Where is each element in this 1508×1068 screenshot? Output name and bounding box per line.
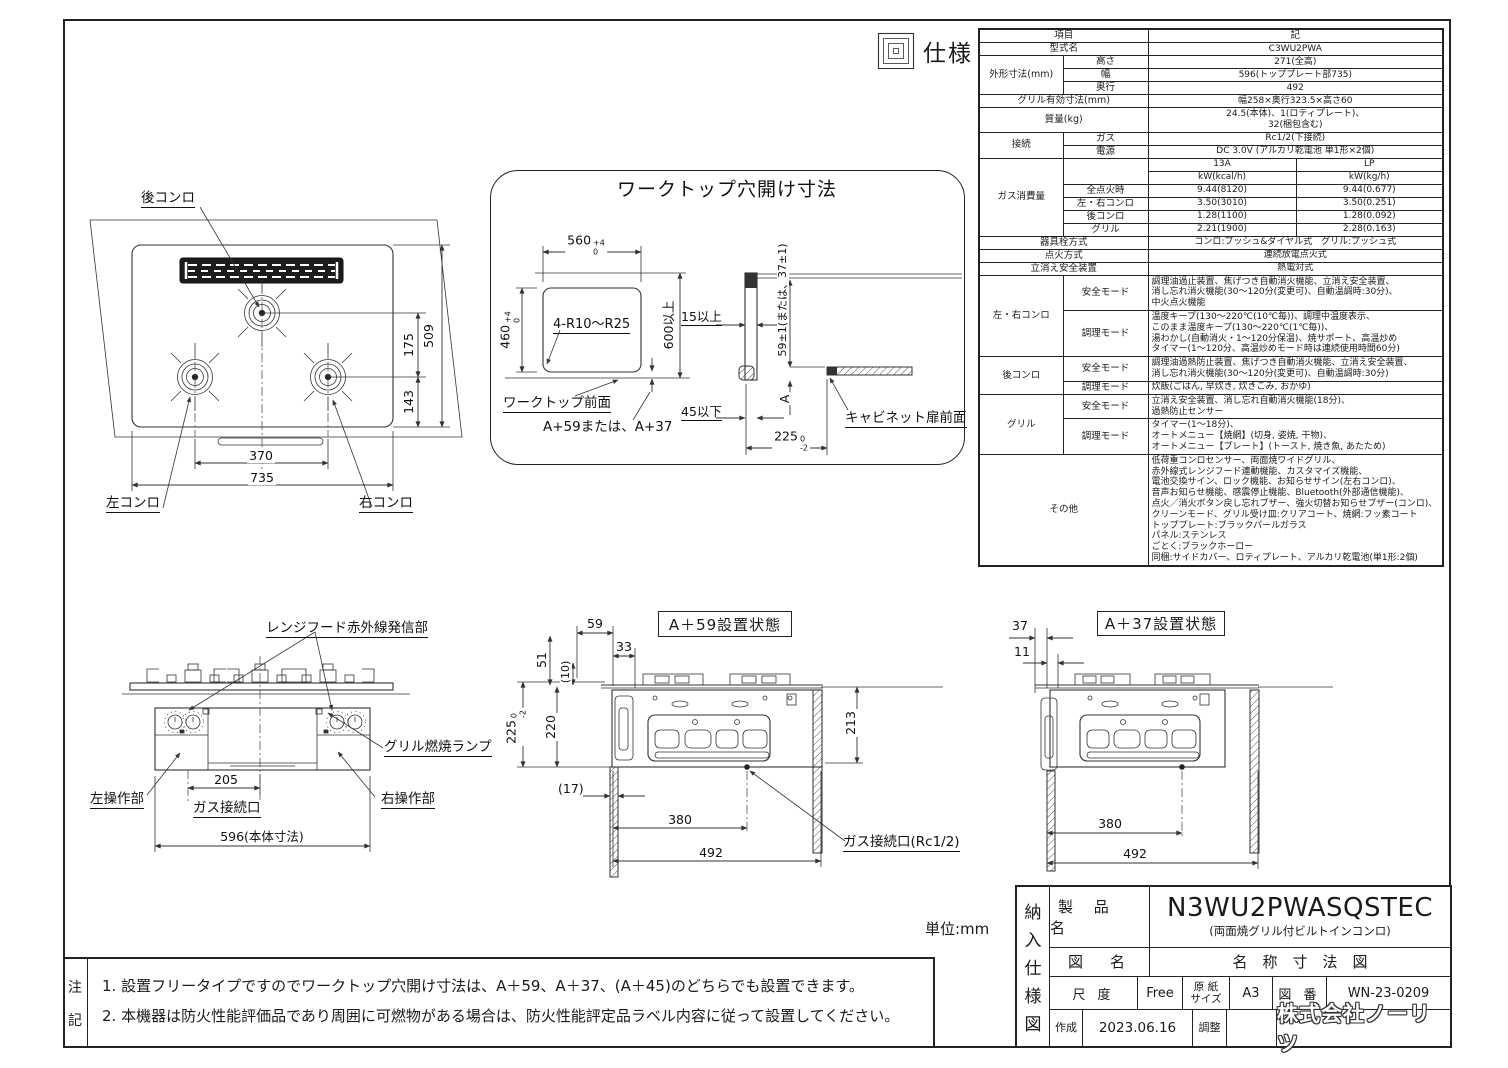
top-view-drawing bbox=[70, 185, 490, 530]
adjust-label: 調整 bbox=[1193, 1010, 1227, 1046]
doc-type-label: 納入仕様図 bbox=[1017, 887, 1050, 1046]
noritz-logo: 株式会社ノーリツ bbox=[1277, 998, 1450, 1058]
dim-225: 2250-2 bbox=[772, 429, 810, 452]
a59-dim-213: 213 bbox=[844, 709, 858, 737]
dim-460: 460+40 bbox=[498, 309, 521, 351]
hood-ir-label: レンジフード赤外線発信部 bbox=[266, 621, 428, 638]
outer-dims-label: 外形寸法(mm) bbox=[979, 56, 1063, 95]
dim-143: 143 bbox=[402, 388, 416, 416]
ignition-label: 点火方式 bbox=[979, 249, 1148, 262]
created-date: 2023.06.16 bbox=[1083, 1010, 1193, 1046]
model-value: C3WU2PWA bbox=[1148, 43, 1443, 56]
created-label: 作成 bbox=[1050, 1010, 1083, 1046]
a-plus-note: A+59または、A+37 bbox=[543, 420, 672, 435]
rear-burner-spec-label: 後コンロ bbox=[979, 357, 1063, 395]
grill-size-label: グリル有効寸法(mm) bbox=[979, 95, 1148, 108]
notes-label: 注記 bbox=[63, 959, 88, 1048]
a59-dim-492: 492 bbox=[697, 846, 725, 860]
dim-45-max: 45以下 bbox=[681, 405, 722, 421]
dim-600-min: 600以上 bbox=[662, 299, 676, 352]
dim-59-or-37: 59±1(または、37±1) bbox=[777, 241, 789, 358]
a59-dim-17: (17) bbox=[558, 782, 584, 796]
spec-drawing-sheet: 仕様 bbox=[0, 0, 1508, 1068]
product-name-cell: N3WU2PWASQSTEC (両面焼グリル付ビルトインコンロ) bbox=[1150, 887, 1450, 947]
drawing-name: 名 称 寸 法 図 bbox=[1150, 948, 1450, 977]
gas-consumption-label: ガス消費量 bbox=[979, 158, 1063, 236]
dim-560: 560+40 bbox=[565, 233, 607, 256]
a37-dim-11: 11 bbox=[1012, 645, 1032, 659]
product-name: N3WU2PWASQSTEC bbox=[1167, 895, 1433, 921]
a37-dim-37: 37 bbox=[1010, 619, 1030, 633]
scale-label: 尺 度 bbox=[1050, 977, 1138, 1009]
scale-value: Free bbox=[1138, 977, 1183, 1009]
left-burner-label: 左コンロ bbox=[106, 496, 160, 513]
a37-dim-380: 380 bbox=[1096, 817, 1124, 831]
left-panel-label: 左操作部 bbox=[90, 792, 144, 809]
adjust-value bbox=[1227, 1010, 1277, 1046]
right-panel-label: 右操作部 bbox=[381, 792, 435, 809]
dim-735: 735 bbox=[248, 471, 276, 485]
spec-nested-squares-icon bbox=[877, 32, 915, 70]
weight-label: 質量(kg) bbox=[979, 108, 1148, 133]
dim-A: A bbox=[778, 393, 792, 406]
other-label: その他 bbox=[979, 454, 1148, 565]
a59-gas-port-label: ガス接続口(Rc1/2) bbox=[843, 835, 960, 852]
right-burner-label: 右コンロ bbox=[359, 496, 413, 513]
worktop-front-label: ワークトップ前面 bbox=[503, 396, 611, 413]
corner-radius-note: 4-R10～R25 bbox=[553, 318, 630, 334]
a59-dim-10: (10) bbox=[560, 659, 572, 686]
dim-175: 175 bbox=[402, 331, 416, 359]
connection-label: 接続 bbox=[979, 132, 1063, 158]
model-label: 型式名 bbox=[979, 43, 1148, 56]
spec-header-value: 記 bbox=[1148, 29, 1443, 43]
a37-view-drawing bbox=[995, 608, 1335, 878]
front-view-drawing bbox=[80, 618, 510, 858]
a59-dim-33: 33 bbox=[614, 640, 634, 654]
drawing-name-label: 図 名 bbox=[1050, 948, 1150, 977]
dim-509: 509 bbox=[422, 322, 436, 350]
spec-header-item: 項目 bbox=[979, 29, 1148, 43]
a59-dim-380: 380 bbox=[666, 813, 694, 827]
gas-port-label: ガス接続口 bbox=[193, 801, 261, 818]
title-block: 納入仕様図 製 品 名 N3WU2PWASQSTEC (両面焼グリル付ビルトイン… bbox=[1015, 885, 1452, 1048]
unit-note: 単位:mm bbox=[925, 918, 989, 939]
cabinet-front-label: キャビネット扉前面 bbox=[845, 411, 967, 428]
dim-15-min: 15以上 bbox=[681, 310, 722, 326]
a59-dim-59: 59 bbox=[585, 617, 605, 631]
a59-dim-51: 51 bbox=[535, 650, 549, 670]
product-name-label: 製 品 名 bbox=[1050, 887, 1150, 947]
a59-dim-225: 2250-2 bbox=[504, 708, 527, 746]
company-logo-cell: 株式会社ノーリツ bbox=[1277, 1010, 1450, 1046]
note-line-2: 2. 本機器は防火性能評価品であり周囲に可燃物がある場合は、防火性能評定品ラベル… bbox=[102, 1001, 933, 1031]
paper-size-label: 原 紙 サイズ bbox=[1183, 977, 1230, 1009]
dim-205: 205 bbox=[212, 773, 240, 787]
paper-size-value: A3 bbox=[1230, 977, 1273, 1009]
product-subtitle: (両面焼グリル付ビルトインコンロ) bbox=[1209, 923, 1390, 939]
spec-section-title: 仕様 bbox=[923, 34, 973, 68]
grill-spec-label: グリル bbox=[979, 394, 1063, 454]
specification-table: 項目記 型式名C3WU2PWA 外形寸法(mm)高さ271(全高) 幅596(ト… bbox=[978, 28, 1442, 567]
notes-body: 1. 設置フリータイプですのでワークトップ穴開け寸法は、A＋59、A＋37、(A… bbox=[88, 959, 933, 1048]
notes-box: 注記 1. 設置フリータイプですのでワークトップ穴開け寸法は、A＋59、A＋37… bbox=[63, 957, 935, 1048]
rear-burner-label: 後コンロ bbox=[141, 191, 195, 208]
dim-370: 370 bbox=[247, 449, 275, 463]
a59-dim-220: 220 bbox=[544, 713, 558, 741]
flameout-label: 立消え安全装置 bbox=[979, 262, 1148, 275]
grill-lamp-label: グリル燃焼ランプ bbox=[384, 740, 492, 757]
a37-dim-492: 492 bbox=[1121, 847, 1149, 861]
valve-type-label: 器具栓方式 bbox=[979, 236, 1148, 249]
lr-burner-label: 左・右コンロ bbox=[979, 275, 1063, 357]
note-line-1: 1. 設置フリータイプですのでワークトップ穴開け寸法は、A＋59、A＋37、(A… bbox=[102, 971, 933, 1001]
dim-596: 596(本体寸法) bbox=[218, 830, 306, 844]
